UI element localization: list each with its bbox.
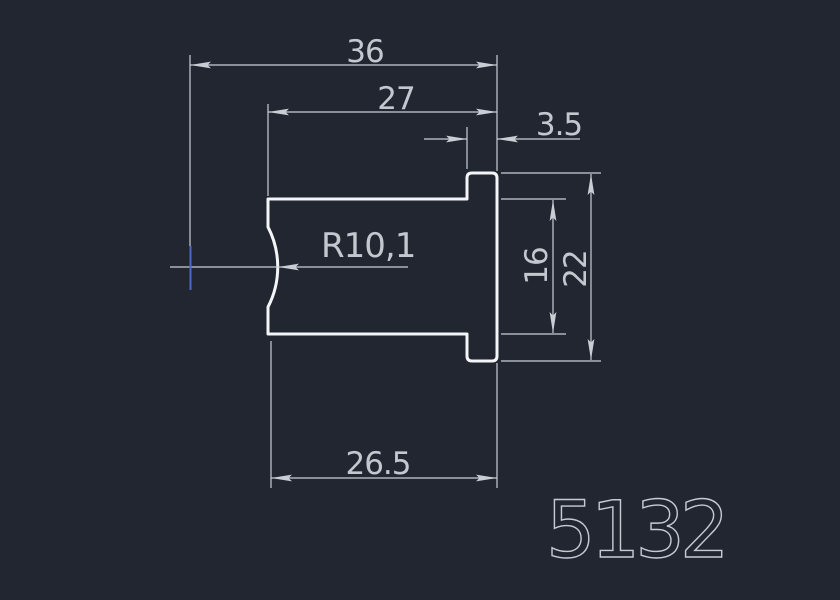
cad-drawing-canvas: 36 27 3.5 R10,1 16 22 26.5 5132 xyxy=(0,0,840,600)
dim-label-body-height: 16 xyxy=(519,247,555,284)
dim-label-flange-height: 22 xyxy=(558,250,594,287)
dim-label-flange-width: 3.5 xyxy=(536,107,582,143)
dim-label-total-width: 36 xyxy=(346,34,383,70)
cad-drawing: 36 27 3.5 R10,1 16 22 26.5 5132 xyxy=(0,0,840,600)
dim-label-radius: R10,1 xyxy=(321,226,415,266)
dim-label-bottom-width: 26.5 xyxy=(345,446,410,482)
dim-label-body-width: 27 xyxy=(377,81,414,117)
part-number: 5132 xyxy=(546,486,725,576)
